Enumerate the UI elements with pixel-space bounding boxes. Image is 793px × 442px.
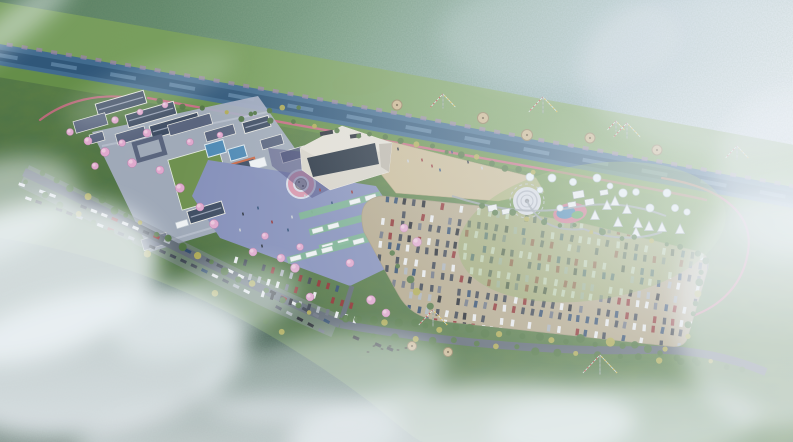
scene-svg [0, 0, 793, 442]
aerial-render [0, 0, 793, 442]
